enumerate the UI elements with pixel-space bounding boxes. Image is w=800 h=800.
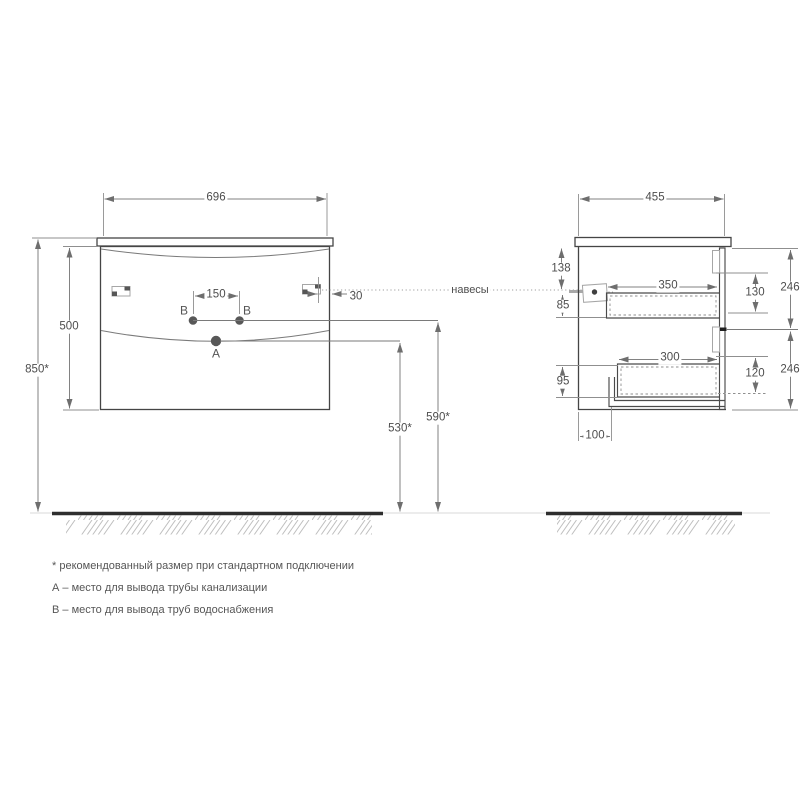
side-bracket-bottom bbox=[713, 327, 720, 352]
point-b-right-label: B bbox=[241, 304, 253, 317]
dim-label-body-height: 500 bbox=[57, 321, 80, 334]
dim-label-front-bottom-height: 246 bbox=[778, 364, 800, 377]
side-cabinet-body bbox=[579, 247, 727, 410]
dim-label-drawer-bottom-depth: 300 bbox=[658, 352, 681, 365]
floor-hatch-left bbox=[66, 516, 372, 535]
technical-drawing-vanity: 696 455 850* 500 150 30 навесы B B A 530… bbox=[0, 0, 800, 800]
front-view bbox=[32, 193, 438, 512]
side-hanger-dot bbox=[592, 289, 597, 294]
side-drain-pipe bbox=[609, 377, 725, 407]
side-drawer-bottom bbox=[618, 364, 720, 397]
front-countertop bbox=[97, 238, 333, 246]
dim-label-water-height: 590* bbox=[424, 412, 452, 425]
dim-label-siphon-height: 530* bbox=[386, 423, 414, 436]
dim-label-drawer-bottom-height: 120 bbox=[743, 368, 766, 381]
dim-label-drawer-top-height: 130 bbox=[743, 287, 766, 300]
hangers-annotation: навесы bbox=[449, 284, 490, 296]
point-a-label: A bbox=[210, 347, 222, 360]
drawing-canvas bbox=[0, 0, 800, 800]
floor-hatch-right bbox=[557, 516, 735, 535]
dim-label-top-to-hanger: 138 bbox=[549, 263, 572, 276]
dim-label-hanger-to-drawer: 85 bbox=[555, 300, 572, 313]
front-basin-curve bbox=[101, 249, 329, 258]
dim-label-outlet-spacing: 150 bbox=[204, 289, 227, 302]
footnote-recommended: * рекомендованный размер при стандартном… bbox=[52, 558, 354, 576]
dim-label-width: 696 bbox=[204, 192, 227, 205]
front-cabinet-body bbox=[101, 247, 330, 410]
point-a-dot bbox=[211, 336, 221, 346]
dim-label-hanger-offset: 30 bbox=[348, 291, 365, 304]
footnotes: * рекомендованный размер при стандартном… bbox=[52, 558, 354, 623]
front-hanger-left bbox=[112, 287, 130, 297]
dim-label-mount-height: 850* bbox=[23, 364, 51, 377]
dim-label-drain-offset: 100 bbox=[583, 430, 606, 443]
footnote-point-a: А – место для вывода трубы канализации bbox=[52, 580, 354, 598]
dim-label-front-top-height: 246 bbox=[778, 282, 800, 295]
dim-label-bottom-gap: 95 bbox=[555, 376, 572, 389]
floor bbox=[30, 513, 770, 535]
point-b-left-label: B bbox=[178, 304, 190, 317]
footnote-point-b: В – место для вывода труб водоснабжения bbox=[52, 602, 354, 620]
side-drawer-top bbox=[607, 293, 720, 318]
side-view bbox=[556, 194, 798, 441]
front-hanger-right bbox=[303, 285, 321, 295]
dim-label-depth: 455 bbox=[643, 192, 666, 205]
dim-label-drawer-top-depth: 350 bbox=[656, 280, 679, 293]
side-bracket-top bbox=[713, 251, 720, 274]
side-countertop bbox=[575, 238, 731, 247]
